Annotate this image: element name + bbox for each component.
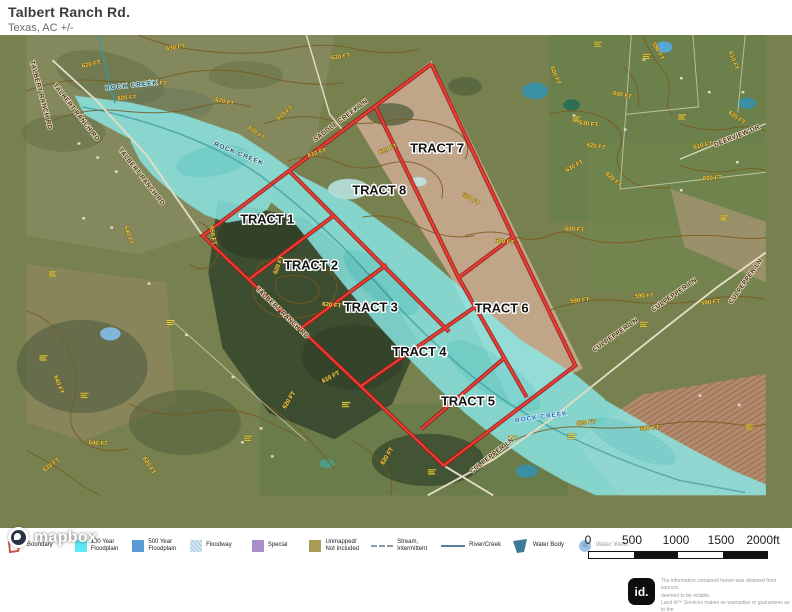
building xyxy=(680,77,683,79)
footer-disclaimer: id. The information contained herein was… xyxy=(628,578,792,612)
legend-item-special: Special xyxy=(252,540,288,552)
building xyxy=(699,394,702,396)
scale-tick: 500 xyxy=(622,533,642,547)
tract-label: TRACT 2 xyxy=(284,257,338,272)
building xyxy=(78,142,81,144)
building xyxy=(271,455,274,457)
water-body-icon xyxy=(511,538,529,554)
scale-bar: 0 500 1000 1500 2000ft xyxy=(577,532,792,563)
legend-item-stream-intermittent: Stream, Intermittent xyxy=(371,539,427,554)
legend-label: 500 Year Floodplain xyxy=(148,539,176,554)
legend-label: River/Creek xyxy=(469,542,501,550)
building xyxy=(738,404,741,406)
legend-label: Special xyxy=(268,542,288,550)
legend-item-unmapped: Unmapped/ Not Included xyxy=(309,539,359,554)
river-creek-icon xyxy=(441,545,465,547)
building xyxy=(741,91,744,93)
scale-tick: 1000 xyxy=(663,533,690,547)
disclaimer-line: The information contained herein was obt… xyxy=(661,578,792,593)
unmapped-swatch xyxy=(309,540,321,552)
legend-label: Water Body xyxy=(533,542,564,550)
legend-item-water-body: Water Body xyxy=(511,538,564,554)
stream-intermittent-icon xyxy=(371,545,393,547)
legend-label: Unmapped/ Not Included xyxy=(325,539,359,554)
building xyxy=(708,91,711,93)
disclaimer-text: The information contained herein was obt… xyxy=(661,578,792,612)
building xyxy=(241,441,244,443)
building xyxy=(96,156,99,158)
building xyxy=(624,128,627,130)
floodway-swatch xyxy=(190,540,202,552)
legend-label: Stream, Intermittent xyxy=(397,539,427,554)
page-title: Talbert Ranch Rd. xyxy=(8,4,130,20)
building xyxy=(82,217,85,219)
page-subtitle: Texas, AC +/- xyxy=(8,22,130,34)
map-header: Talbert Ranch Rd. Texas, AC +/- xyxy=(8,4,130,34)
special-swatch xyxy=(252,540,264,552)
legend-item-river-creek: River/Creek xyxy=(441,542,501,550)
tract-label: TRACT 1 xyxy=(240,212,294,227)
building xyxy=(736,161,739,163)
building xyxy=(185,334,188,336)
building xyxy=(148,282,151,284)
scale-tick: 2000ft xyxy=(746,533,779,547)
mapbox-wordmark: mapbox xyxy=(34,529,97,547)
legend-label: Floodway xyxy=(206,542,232,550)
tract-label: TRACT 3 xyxy=(344,299,398,314)
building xyxy=(115,170,118,172)
land-id-logo-text: id. xyxy=(635,585,649,599)
disclaimer-line: Land id™ Services makes no warranties or… xyxy=(661,600,792,612)
mapbox-attribution[interactable]: mapbox xyxy=(8,527,97,548)
building xyxy=(232,376,235,378)
legend-item-floodway: Floodway xyxy=(190,540,232,552)
tract-label: TRACT 8 xyxy=(352,183,406,198)
scale-tick: 1500 xyxy=(708,533,735,547)
map-canvas[interactable]: 620 FT630 FT620 FT620 FT620 FT630 FT610 … xyxy=(0,35,792,528)
tract-label: TRACT 7 xyxy=(410,141,464,156)
scale-bar-segments xyxy=(588,551,768,559)
building xyxy=(260,427,263,429)
mapbox-logo-icon xyxy=(8,527,29,548)
tract-label: TRACT 4 xyxy=(392,344,447,359)
building xyxy=(110,226,113,228)
map-svg: 620 FT630 FT620 FT620 FT620 FT630 FT610 … xyxy=(0,35,792,528)
legend-item-500-year-floodplain: 500 Year Floodplain xyxy=(132,539,176,554)
disclaimer-line: deemed to be reliable. xyxy=(661,593,792,600)
tract-label: TRACT 6 xyxy=(475,300,529,315)
floodplain-500-swatch xyxy=(132,540,144,552)
scale-tick: 0 xyxy=(585,533,592,547)
land-id-logo: id. xyxy=(628,578,655,605)
page: Talbert Ranch Rd. Texas, AC +/- xyxy=(0,0,792,612)
building xyxy=(680,189,683,191)
tract-label: TRACT 5 xyxy=(441,394,495,409)
